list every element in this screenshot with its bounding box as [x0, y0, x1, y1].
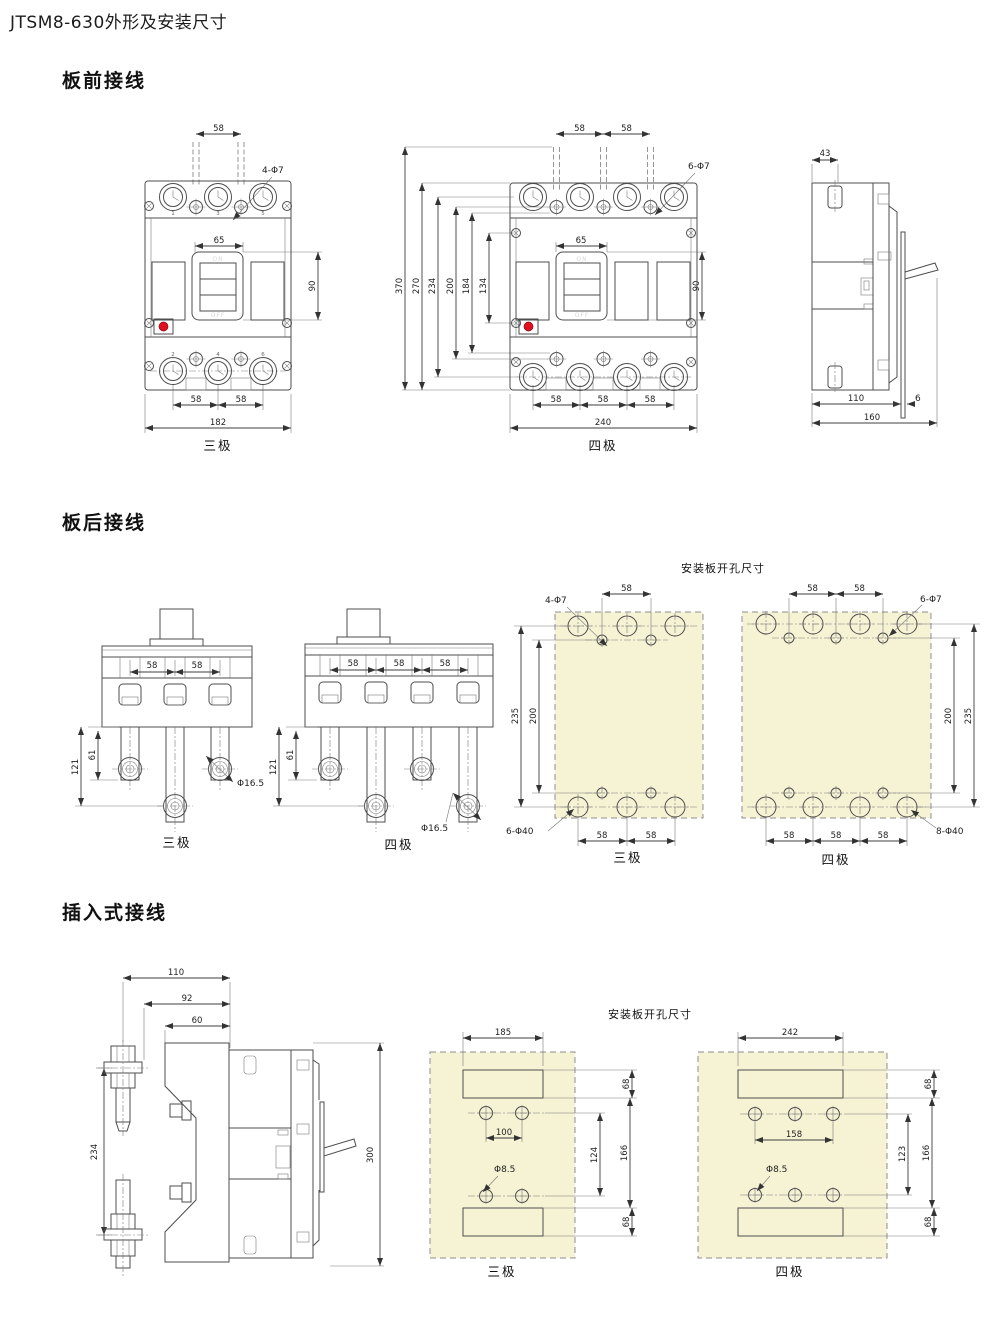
dim-vertical: 123 — [898, 1146, 908, 1162]
front-4pole-view: 58 58 6-Φ7 370 270 234 200 184 134 65 90… — [395, 124, 710, 453]
rocker-handle — [564, 279, 600, 295]
trip-indicator-dot — [159, 322, 168, 331]
case-screw — [283, 362, 292, 371]
dim-60: 60 — [192, 1016, 203, 1026]
dimension-lines — [75, 727, 233, 806]
side-detail — [276, 1146, 290, 1168]
face-detail — [878, 194, 889, 204]
terminal-number: 6 — [261, 352, 265, 358]
case-screw — [687, 358, 696, 367]
lower-stud — [98, 1174, 150, 1276]
dim-slot-height: 68 — [622, 1079, 632, 1090]
front-face-profile — [291, 1050, 313, 1258]
clamp-screw — [232, 199, 251, 216]
dim-92: 92 — [182, 994, 193, 1004]
terminal — [205, 184, 232, 211]
side-detail — [278, 1130, 288, 1135]
dim-slot-height: 68 — [622, 1217, 632, 1228]
dim-strap-long: 121 — [269, 759, 279, 775]
terminal — [567, 364, 594, 391]
dim-height: 184 — [462, 278, 472, 294]
hole-callout: 6-Φ7 — [920, 595, 942, 605]
terminal-slot — [244, 1236, 256, 1254]
dim-depth-a: 110 — [848, 394, 864, 404]
caption-4pole: 四极 — [588, 438, 617, 453]
escutcheon-off-mark: OFF — [575, 312, 590, 319]
bracket-nut — [170, 1186, 182, 1199]
caption-4pole: 四极 — [821, 852, 850, 867]
dim-slot-height: 68 — [924, 1217, 934, 1228]
technical-drawing-canvas: 58 4-Φ7 65 90 1 3 5 ON OFF OFF ON — [0, 0, 1000, 1318]
dim-handle-width: 65 — [214, 236, 225, 246]
dim-hole-pitch: 100 — [496, 1128, 512, 1138]
bracket-nut — [170, 1104, 182, 1117]
hole-callout: Φ8.5 — [494, 1165, 515, 1175]
dim-pitch: 58 — [878, 831, 889, 841]
stud-head — [209, 684, 231, 705]
escutcheon-on-mark: ON — [212, 256, 223, 263]
face-detail — [297, 1232, 309, 1242]
handle-block — [160, 609, 193, 639]
dim-pitch: 58 — [440, 659, 451, 669]
terminal-number: 5 — [261, 211, 265, 217]
hole-callout: Φ16.5 — [421, 824, 448, 834]
toggle-handle — [905, 263, 938, 279]
latch-tab — [864, 304, 873, 309]
dim-top-width: 43 — [820, 149, 831, 159]
caption-4pole: 四极 — [384, 837, 413, 852]
mounting-plate — [430, 1052, 575, 1258]
front-face-profile — [873, 183, 889, 390]
dim-height: 200 — [446, 278, 456, 294]
hole-callout: 6-Φ7 — [688, 162, 710, 172]
dim-pitch: 58 — [147, 661, 158, 671]
case-screw — [145, 362, 154, 371]
stud-head — [164, 684, 186, 705]
rocker-handle — [200, 279, 236, 295]
dim-overall-width: 182 — [210, 418, 226, 428]
side-recess — [615, 262, 648, 320]
hole-callout: 8-Φ40 — [936, 827, 964, 837]
terminal-number: 4 — [216, 352, 220, 358]
dim-vertical: 166 — [620, 1145, 630, 1161]
rear-mounting-plate-3pole: 58 4-Φ7 235 200 6-Φ40 58 58 三极 — [506, 584, 703, 865]
wire-leads — [554, 147, 654, 190]
case-notch — [640, 378, 660, 390]
dim-pitch-top: 58 — [574, 124, 585, 134]
hole-callout: 6-Φ40 — [506, 827, 534, 837]
rear-3pole-view: 58 58 61 121 Φ16.5 三 — [71, 609, 264, 850]
trip-indicator-dot — [524, 322, 533, 331]
rear-4pole-view: 58 58 58 — [269, 609, 493, 852]
case-upper-band — [102, 657, 252, 678]
dim-handle-height: 90 — [308, 281, 318, 292]
wire-leads — [193, 142, 244, 187]
caption-4pole: 四极 — [775, 1264, 804, 1279]
off-label: OFF — [209, 268, 226, 276]
mounting-plate — [698, 1052, 887, 1258]
terminal-number: 3 — [216, 211, 220, 217]
dim-slot-width: 242 — [782, 1028, 798, 1038]
handle-base — [150, 639, 203, 646]
clamp-screw — [187, 351, 206, 368]
terminal — [250, 184, 277, 211]
case-notch — [546, 378, 566, 390]
dim-depth-total: 160 — [864, 413, 880, 423]
dim-vertical: 200 — [944, 708, 954, 724]
terminal — [661, 184, 688, 211]
dimension-lines — [812, 160, 937, 427]
side-recess — [516, 262, 549, 320]
case-screw — [283, 202, 292, 211]
dim-pitch: 58 — [646, 831, 657, 841]
plugin-mounting-plate-4pole: 242 68 158 123 166 Φ8.5 68 四极 — [698, 1028, 940, 1279]
dim-overall-width: 240 — [595, 418, 611, 428]
rear-plate-title: 安装板开孔尺寸 — [681, 561, 765, 575]
dim-hole-pitch: 158 — [786, 1130, 802, 1140]
plugin-side-view: 110 92 60 234 300 — [90, 968, 384, 1276]
side-recess — [251, 262, 284, 320]
terminal — [614, 184, 641, 211]
dim-pitch-bottom: 58 — [236, 395, 247, 405]
dim-vertical: 166 — [922, 1145, 932, 1161]
dim-vertical: 124 — [590, 1147, 600, 1163]
dimension-lines — [96, 978, 384, 1266]
off-label: OFF — [573, 268, 590, 276]
dim-strap-short: 61 — [88, 750, 98, 761]
dim-slot-width: 185 — [495, 1028, 511, 1038]
escutcheon-off-mark: OFF — [211, 312, 226, 319]
bracket-nut — [182, 1183, 191, 1202]
side-detail — [278, 1174, 288, 1179]
case-rear-band — [102, 678, 252, 727]
case-notch — [593, 378, 613, 390]
terminal — [614, 364, 641, 391]
dim-pitch: 58 — [621, 584, 632, 594]
terminal-slot — [244, 1056, 256, 1074]
hole-callout: Φ16.5 — [237, 779, 264, 789]
drawing-sheet: JTSM8-630外形及安装尺寸 板前接线 板后接线 插入式接线 — [0, 0, 1000, 1318]
hole-callout: 4-Φ7 — [545, 596, 567, 606]
mounting-plate — [555, 612, 703, 818]
handle-block — [347, 609, 380, 637]
dim-pitch-bottom: 58 — [551, 395, 562, 405]
dim-pitch: 58 — [394, 659, 405, 669]
stud-head — [119, 684, 141, 705]
bracket-nut — [182, 1101, 191, 1120]
dim-234: 234 — [90, 1144, 100, 1160]
caption-3pole: 三极 — [613, 850, 642, 865]
case-notch — [186, 378, 206, 390]
caption-3pole: 三极 — [203, 438, 232, 453]
plugin-plate-title: 安装板开孔尺寸 — [608, 1007, 692, 1021]
terminal-number: 2 — [171, 352, 175, 358]
upper-stud — [98, 1040, 150, 1136]
side-recess — [657, 262, 690, 320]
case-screw — [145, 202, 154, 211]
escutcheon-on-mark: ON — [576, 256, 587, 263]
face-detail — [297, 1124, 309, 1134]
side-detail — [861, 278, 873, 295]
dim-300: 300 — [366, 1147, 376, 1163]
dim-height: 234 — [428, 278, 438, 294]
dim-pitch: 58 — [807, 584, 818, 594]
dim-depth-b: 6 — [915, 394, 921, 404]
dim-vertical: 200 — [529, 708, 539, 724]
dim-strap-short: 61 — [286, 750, 296, 761]
case-notch — [231, 378, 251, 390]
plugin-mounting-plate-3pole: 185 68 100 124 166 Φ8.5 68 三极 — [430, 1028, 637, 1279]
dim-pitch: 58 — [348, 659, 359, 669]
handle-base — [337, 637, 390, 644]
mounting-panel — [320, 1102, 324, 1192]
dim-height: 370 — [395, 278, 405, 294]
breaker-body-side — [229, 1050, 291, 1258]
side-recess — [152, 262, 185, 320]
clamp-screw — [594, 351, 613, 368]
dim-height: 134 — [479, 278, 489, 294]
mounting-panel — [901, 232, 905, 418]
dim-strap-long: 121 — [71, 759, 81, 775]
dim-pitch: 58 — [854, 584, 865, 594]
terminal — [160, 358, 187, 385]
dim-pitch-top: 58 — [621, 124, 632, 134]
caption-3pole: 三极 — [487, 1264, 516, 1279]
dim-vertical: 235 — [511, 708, 521, 724]
clamp-screw — [641, 351, 660, 368]
clamp-screw — [594, 199, 613, 216]
dim-pitch: 58 — [784, 831, 795, 841]
on-label: ON — [212, 300, 225, 308]
terminal — [205, 358, 232, 385]
terminal — [520, 184, 547, 211]
hole-callout: 4-Φ7 — [262, 166, 284, 176]
dimension-lines — [273, 727, 481, 822]
case-rear-band — [305, 676, 493, 727]
face-detail — [297, 1060, 309, 1070]
terminal — [520, 364, 547, 391]
hole-callout: Φ8.5 — [766, 1165, 787, 1175]
dim-pitch-bottom: 58 — [191, 395, 202, 405]
front-3pole-view: 58 4-Φ7 65 90 1 3 5 ON OFF OFF ON — [145, 124, 323, 453]
terminal-number: 1 — [171, 211, 175, 217]
side-detail — [864, 281, 869, 290]
clamp-screw — [187, 199, 206, 216]
case-top-band — [102, 646, 252, 657]
on-label: ON — [576, 300, 589, 308]
dimension-lines — [145, 134, 322, 433]
side-view: 43 110 6 160 — [812, 149, 938, 427]
dim-pitch: 58 — [831, 831, 842, 841]
face-detail — [878, 360, 889, 370]
dim-pitch-bottom: 58 — [645, 395, 656, 405]
toggle-handle — [324, 1139, 356, 1156]
dim-pitch-bottom: 58 — [598, 395, 609, 405]
dim-vertical: 235 — [964, 708, 974, 724]
dim-pitch: 58 — [192, 661, 203, 671]
plugin-base-bracket — [165, 1043, 229, 1262]
terminal — [160, 184, 187, 211]
terminal — [250, 358, 277, 385]
caption-3pole: 三极 — [162, 835, 191, 850]
terminal — [567, 184, 594, 211]
rear-mounting-plate-4pole: 58 58 6-Φ7 200 235 8-Φ40 58 58 58 四极 — [742, 584, 980, 867]
clamp-screw — [232, 351, 251, 368]
dim-handle-width: 65 — [576, 236, 587, 246]
case-top-band — [305, 644, 493, 655]
terminal — [661, 364, 688, 391]
dim-slot-height: 68 — [924, 1079, 934, 1090]
dim-pitch-top: 58 — [213, 124, 224, 134]
dim-110: 110 — [168, 968, 184, 978]
dim-height: 270 — [412, 278, 422, 294]
dim-pitch: 58 — [597, 831, 608, 841]
